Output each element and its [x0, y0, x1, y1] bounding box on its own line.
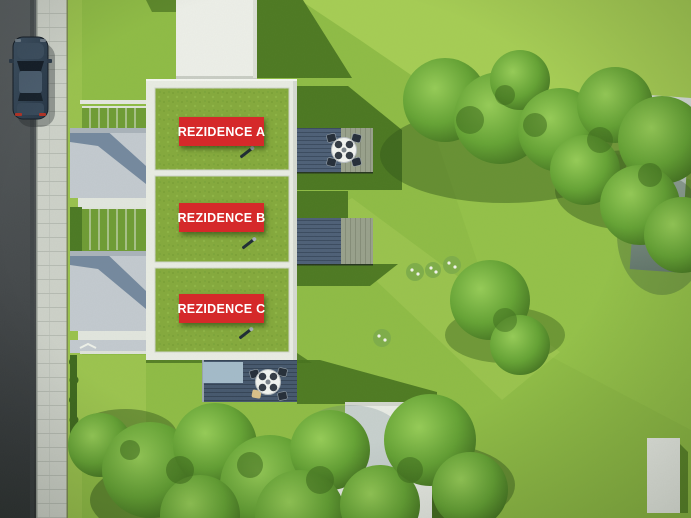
residence-c-label[interactable]: REZIDENCE C: [179, 294, 264, 323]
vignette: [0, 0, 691, 518]
residence-a-label[interactable]: REZIDENCE A: [179, 117, 264, 146]
scene-art: [0, 0, 691, 518]
residence-b-label[interactable]: REZIDENCE B: [179, 203, 264, 232]
site-plan-render: REZIDENCE A REZIDENCE B REZIDENCE C: [0, 0, 691, 518]
